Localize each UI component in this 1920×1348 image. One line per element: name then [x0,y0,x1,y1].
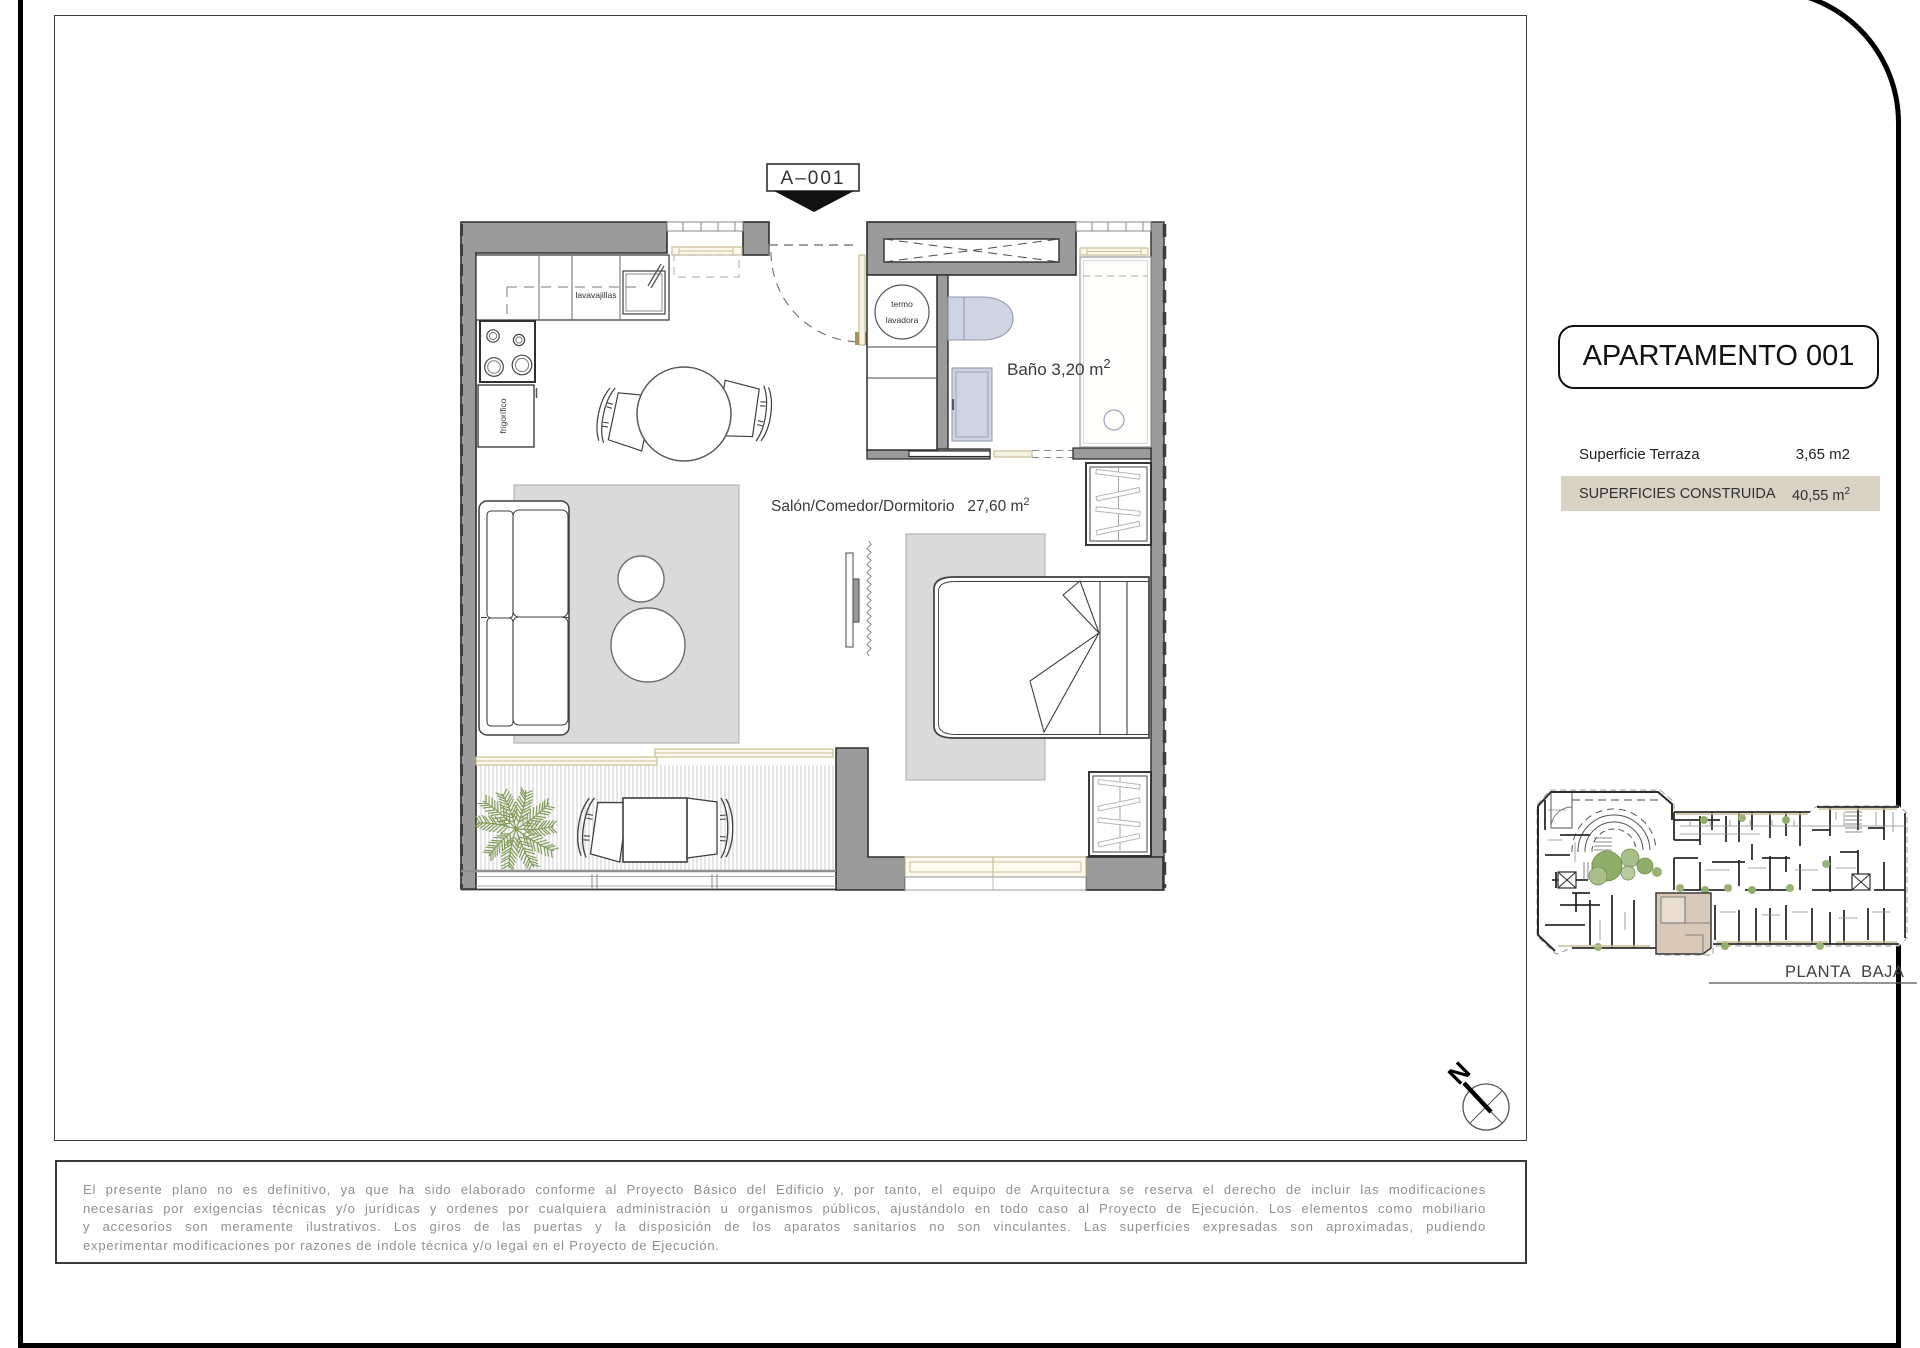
svg-text:lavavajillas: lavavajillas [575,290,616,300]
svg-text:PLANTA BAJA: PLANTA BAJA [1785,963,1904,981]
svg-text:Salón/Comedor/Dormitorio 27,: Salón/Comedor/Dormitorio 27,60 m2 [771,496,1030,515]
svg-text:lavadora: lavadora [886,315,919,325]
svg-text:termo: termo [891,299,913,309]
svg-text:Baño 3,20 m2: Baño 3,20 m2 [1007,356,1111,379]
svg-text:A–001: A–001 [781,168,846,189]
svg-text:N: N [1442,1056,1476,1090]
svg-text:frigorífico: frigorífico [498,398,508,433]
